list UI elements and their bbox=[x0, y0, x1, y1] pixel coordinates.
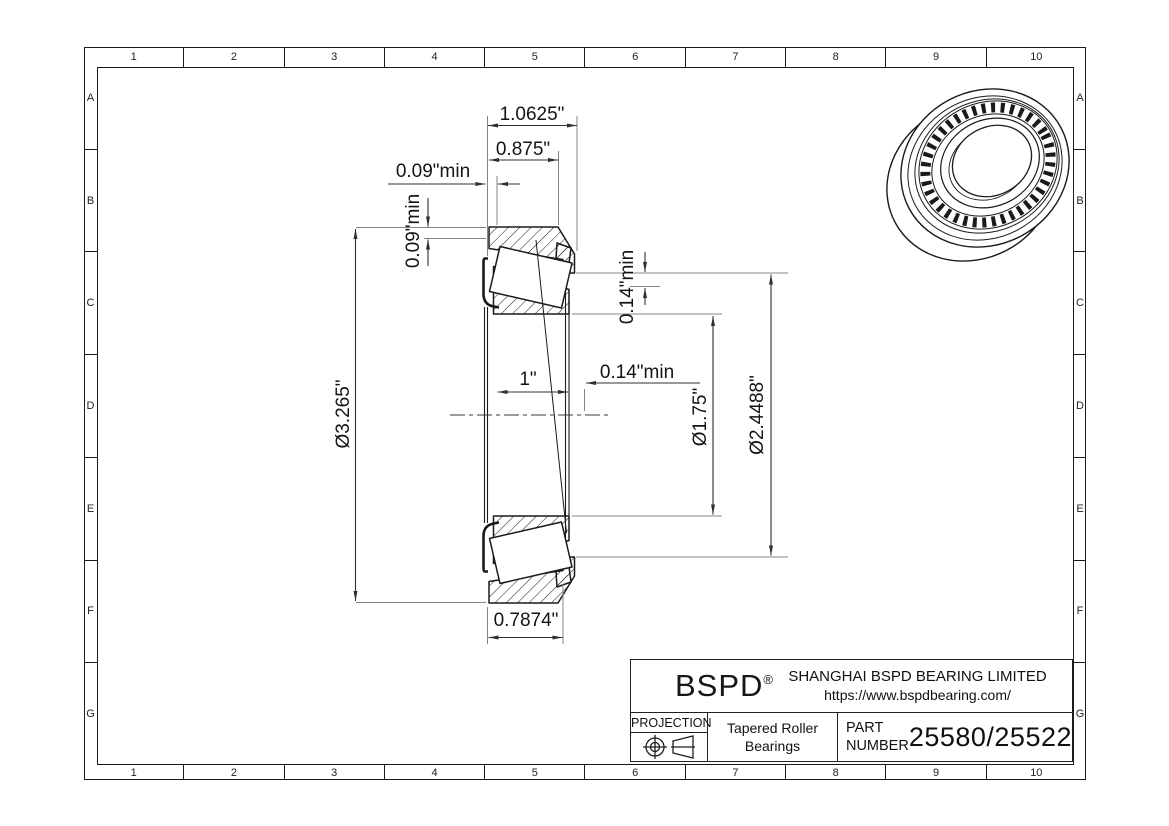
drawing-sheet: 12345678910 12345678910 ABCDEFG ABCDEFG bbox=[0, 0, 1169, 826]
dim-outer-diameter: Ø3.265" bbox=[333, 379, 355, 448]
dim-cone-width: 1" bbox=[519, 369, 536, 391]
product-line1: Tapered Roller bbox=[727, 719, 818, 737]
title-block-header: BSPD® SHANGHAI BSPD BEARING LIMITED http… bbox=[631, 660, 1072, 713]
part-label-line1: PART bbox=[846, 719, 909, 737]
part-number-cell: PART NUMBER 25580/25522 bbox=[838, 713, 1072, 761]
brand-logo: BSPD® bbox=[675, 668, 773, 704]
dim-bore-diameter: Ø1.75" bbox=[690, 388, 712, 447]
dim-backing-left-vertical: 0.09"min bbox=[403, 194, 425, 268]
company-name: SHANGHAI BSPD BEARING LIMITED bbox=[773, 668, 1062, 687]
company-website: https://www.bspdbearing.com/ bbox=[773, 687, 1062, 705]
registered-trademark-icon: ® bbox=[763, 672, 773, 687]
projection-label: PROJECTION bbox=[631, 713, 707, 733]
part-number-value: 25580/25522 bbox=[909, 722, 1072, 753]
projection-cell: PROJECTION bbox=[631, 713, 708, 761]
product-line2: Bearings bbox=[745, 737, 800, 755]
part-label-line2: NUMBER bbox=[846, 737, 909, 755]
brand-name: BSPD bbox=[675, 668, 763, 703]
dim-backing-right-vertical: 0.14"min bbox=[617, 250, 639, 324]
first-angle-projection-icon bbox=[631, 733, 707, 761]
dim-backing-right-horizontal: 0.14"min bbox=[600, 362, 674, 384]
dim-cup-inner-diameter: Ø2.4488" bbox=[747, 375, 769, 455]
bearing-3d-view bbox=[859, 60, 1097, 291]
dim-overall-width: 1.0625" bbox=[500, 104, 565, 126]
dim-backing-left-horizontal: 0.09"min bbox=[396, 161, 470, 183]
dim-cup-width-top: 0.875" bbox=[496, 139, 550, 161]
dim-cup-width-bottom: 0.7874" bbox=[494, 610, 559, 632]
product-cell: Tapered Roller Bearings bbox=[708, 713, 838, 761]
title-block: BSPD® SHANGHAI BSPD BEARING LIMITED http… bbox=[630, 659, 1073, 762]
